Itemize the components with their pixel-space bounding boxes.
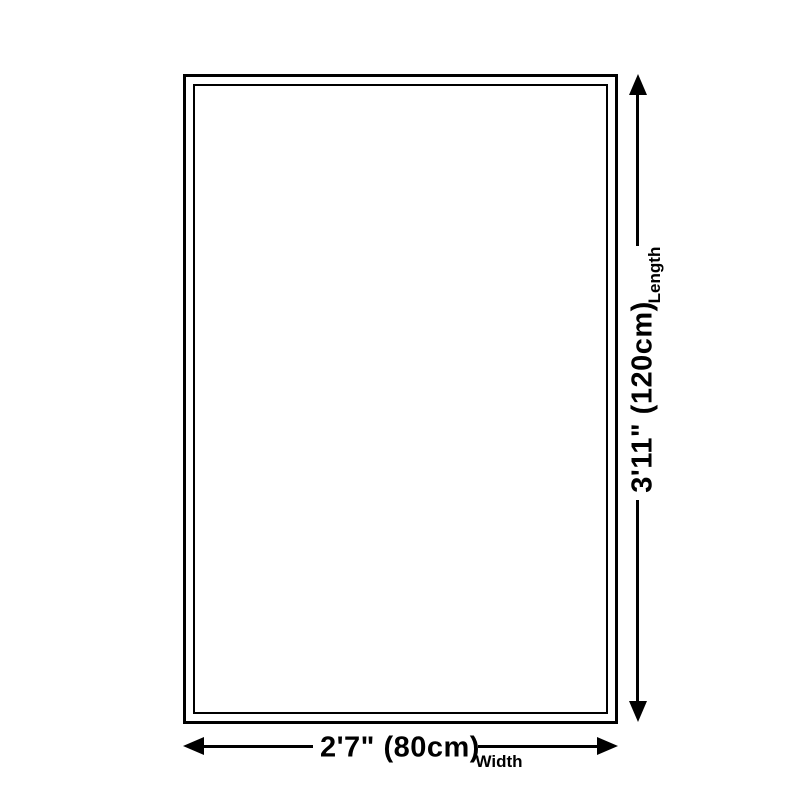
width-arrow-line-right — [478, 745, 602, 748]
dimension-diagram: Length 3'11" (120cm) 2'7" (80cm) Width — [0, 0, 800, 800]
product-outline-inner — [193, 84, 608, 714]
arrow-right-icon — [597, 737, 618, 755]
length-sublabel: Length — [645, 247, 665, 304]
width-value: 2'7" (80cm) — [320, 732, 480, 765]
length-value: 3'11" (120cm) — [627, 301, 660, 493]
length-arrow-line-top — [636, 86, 639, 246]
width-sublabel: Width — [475, 752, 522, 772]
length-arrow-line-bottom — [636, 500, 639, 710]
width-arrow-line-left — [200, 745, 313, 748]
product-outline-outer — [183, 74, 618, 724]
arrow-down-icon — [629, 701, 647, 722]
